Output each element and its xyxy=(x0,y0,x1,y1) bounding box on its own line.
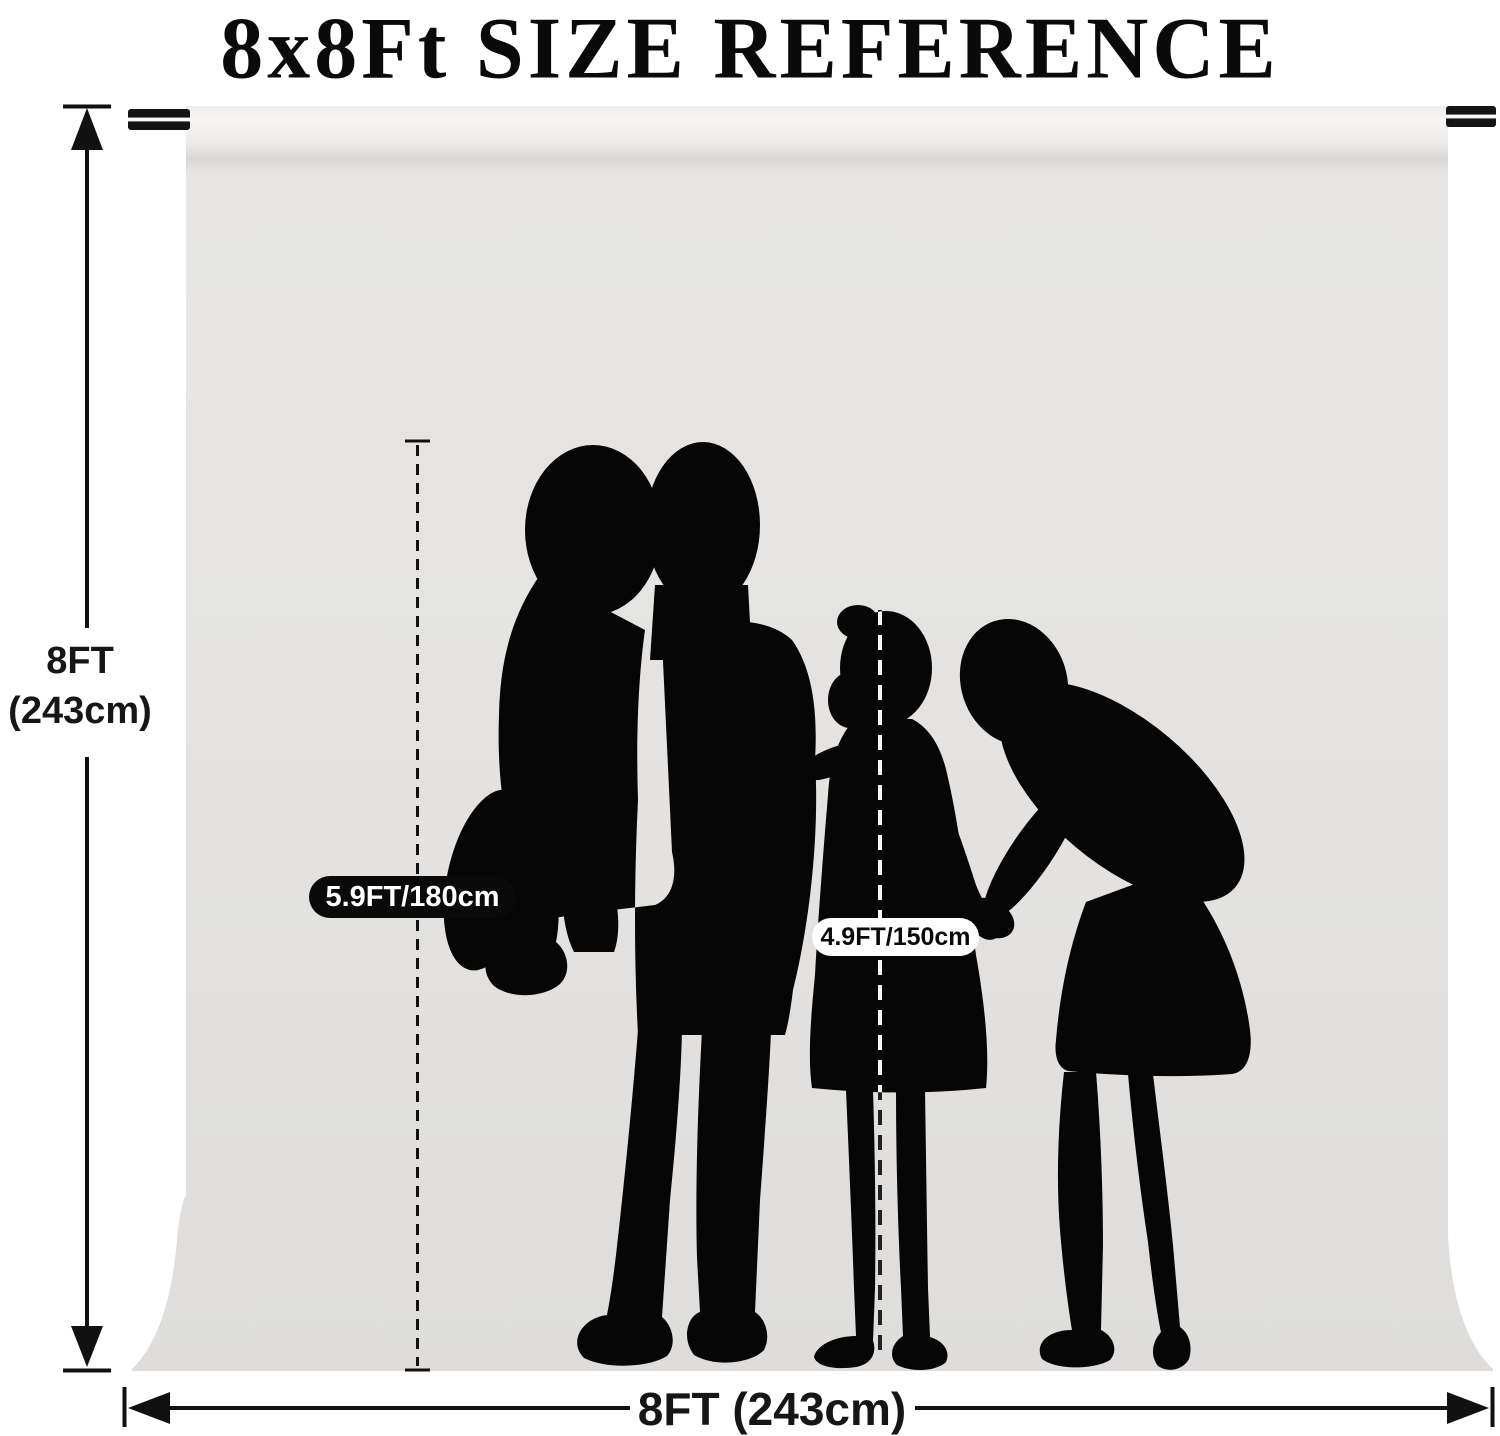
adult-height-badge: 5.9FT/180cm xyxy=(309,876,516,918)
child-height-badge-label: 4.9FT/150cm xyxy=(820,923,970,952)
child-height-badge: 4.9FT/150cm xyxy=(812,918,979,956)
child-height-dashed-line xyxy=(0,0,1500,1429)
page-title: 8x8Ft SIZE REFERENCE xyxy=(0,0,1500,97)
adult-height-badge-label: 5.9FT/180cm xyxy=(325,881,499,914)
height-label-feet: 8FT xyxy=(0,636,160,686)
backdrop-height-label: 8FT (243cm) xyxy=(0,636,160,736)
height-label-cm: (243cm) xyxy=(0,686,160,736)
size-reference-infographic: 5.9FT/180cm 4.9FT/150cm 8FT (243cm) 8FT … xyxy=(0,0,1500,1429)
backdrop-width-label: 8FT (243cm) xyxy=(572,1382,972,1436)
